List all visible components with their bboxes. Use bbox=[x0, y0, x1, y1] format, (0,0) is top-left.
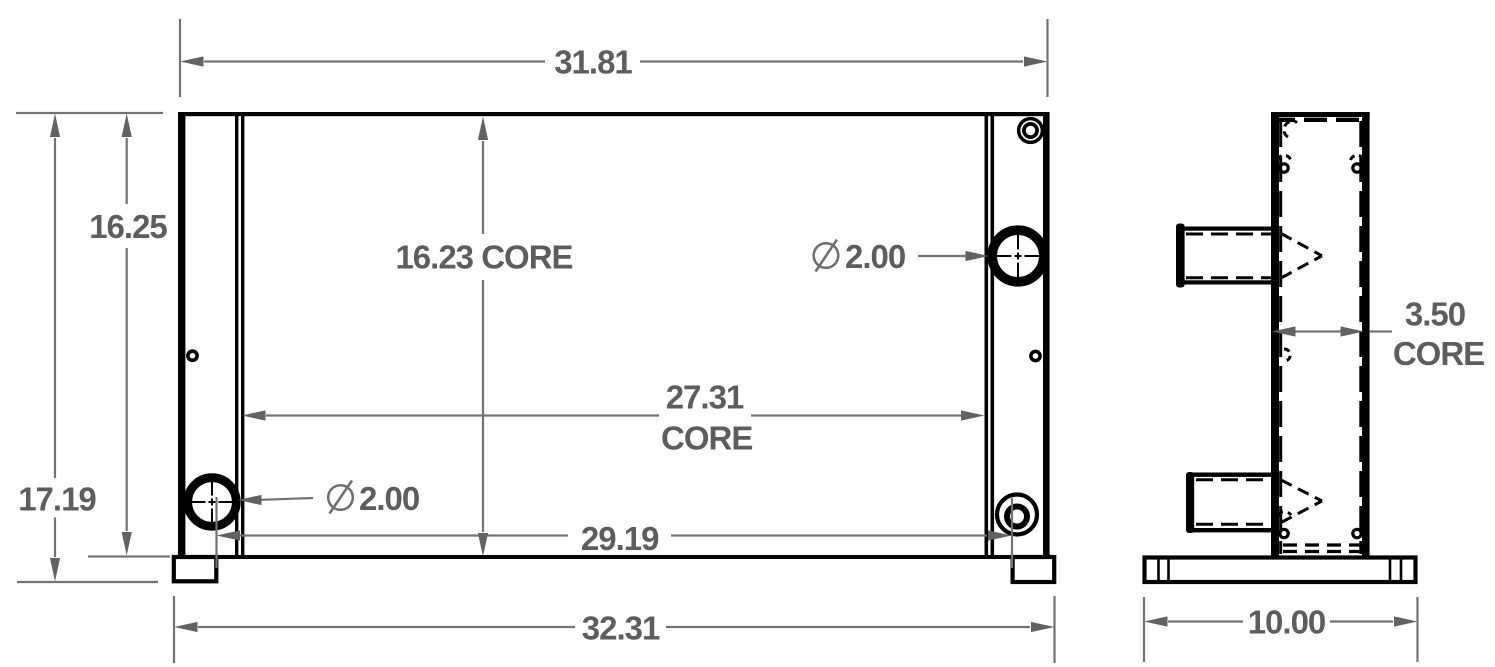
svg-text:3.50: 3.50 bbox=[1405, 296, 1465, 333]
svg-text:29.19: 29.19 bbox=[581, 520, 659, 557]
svg-text:2.00: 2.00 bbox=[359, 480, 419, 517]
svg-text:17.19: 17.19 bbox=[18, 481, 96, 518]
svg-text:27.31: 27.31 bbox=[666, 378, 744, 415]
svg-text:10.00: 10.00 bbox=[1248, 604, 1326, 641]
svg-text:16.25: 16.25 bbox=[89, 208, 167, 245]
svg-text:31.81: 31.81 bbox=[554, 44, 632, 81]
svg-text:16.23 CORE: 16.23 CORE bbox=[395, 239, 572, 276]
svg-text:2.00: 2.00 bbox=[845, 238, 905, 275]
svg-text:32.31: 32.31 bbox=[582, 610, 660, 647]
svg-text:CORE: CORE bbox=[1393, 335, 1484, 372]
svg-text:CORE: CORE bbox=[661, 420, 752, 457]
